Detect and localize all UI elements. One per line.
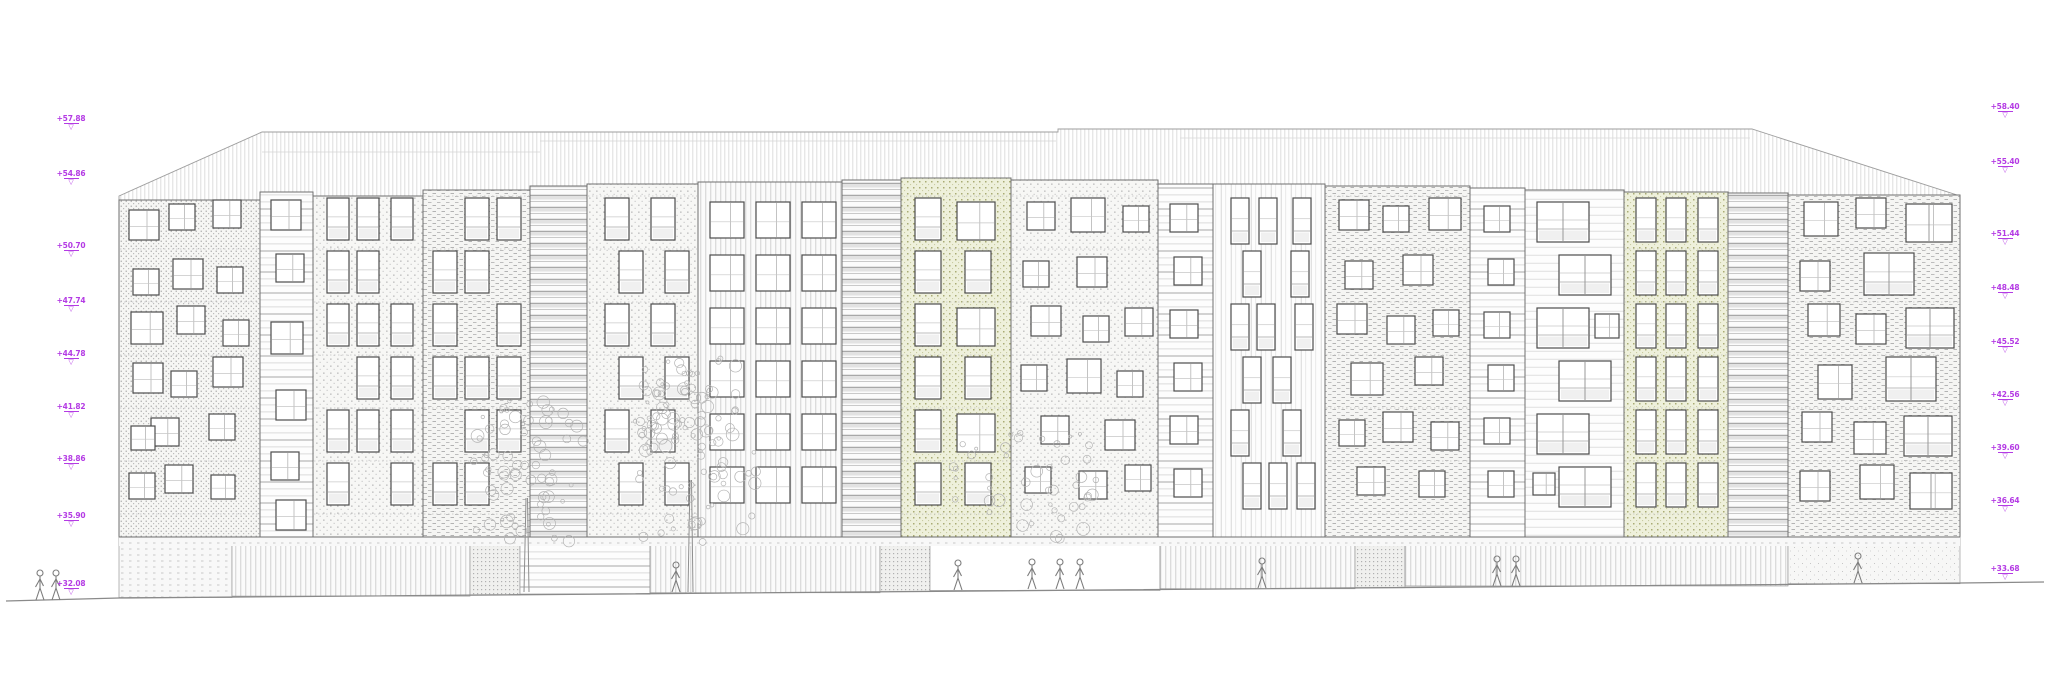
window bbox=[756, 414, 790, 450]
window bbox=[1415, 357, 1443, 385]
window bbox=[756, 308, 790, 344]
level-marker: +58.40▽ bbox=[1982, 103, 2028, 118]
facade-panel-08 bbox=[842, 180, 901, 537]
window bbox=[1174, 363, 1202, 391]
facade-panel-15 bbox=[1525, 190, 1624, 537]
window bbox=[1383, 412, 1413, 442]
window bbox=[1804, 202, 1838, 236]
window bbox=[1174, 469, 1202, 497]
facade-panel-12 bbox=[1213, 184, 1325, 537]
window bbox=[133, 269, 159, 295]
window bbox=[1800, 471, 1830, 501]
level-value: +41.82 bbox=[48, 403, 94, 411]
window bbox=[217, 267, 243, 293]
level-datum-icon: ▽ bbox=[1998, 166, 2013, 173]
facade-panel-02 bbox=[260, 192, 313, 537]
window bbox=[802, 308, 836, 344]
level-value: +47.74 bbox=[48, 297, 94, 305]
level-marker: +39.60▽ bbox=[1982, 444, 2028, 459]
level-datum-icon: ▽ bbox=[1998, 238, 2013, 245]
level-datum-icon: ▽ bbox=[1998, 573, 2013, 580]
window bbox=[209, 414, 235, 440]
elevation-sheet: +57.88▽+54.86▽+50.70▽+47.74▽+44.78▽+41.8… bbox=[0, 0, 2048, 678]
level-datum-icon: ▽ bbox=[1998, 452, 2013, 459]
window bbox=[1533, 473, 1555, 495]
facade-panel-05 bbox=[530, 186, 587, 537]
window bbox=[223, 320, 249, 346]
level-value: +48.48 bbox=[1982, 284, 2028, 292]
window bbox=[1484, 312, 1510, 338]
window bbox=[1808, 304, 1840, 336]
window bbox=[756, 255, 790, 291]
window bbox=[165, 465, 193, 493]
level-marker: +35.90▽ bbox=[48, 512, 94, 527]
window bbox=[1025, 467, 1051, 493]
level-marker: +57.88▽ bbox=[48, 115, 94, 130]
window bbox=[1117, 371, 1143, 397]
facade-panel-17 bbox=[1728, 193, 1788, 537]
window bbox=[1105, 420, 1135, 450]
window bbox=[1170, 416, 1198, 444]
level-value: +45.52 bbox=[1982, 338, 2028, 346]
window bbox=[276, 390, 306, 420]
storefront-section bbox=[119, 537, 232, 598]
window bbox=[1403, 255, 1433, 285]
window bbox=[802, 467, 836, 503]
window bbox=[1123, 206, 1149, 232]
level-value: +50.70 bbox=[48, 242, 94, 250]
window bbox=[173, 259, 203, 289]
window bbox=[1383, 206, 1409, 232]
level-datum-icon: ▽ bbox=[64, 463, 79, 470]
level-datum-icon: ▽ bbox=[64, 305, 79, 312]
window bbox=[710, 202, 744, 238]
facade-panel-18 bbox=[1788, 195, 1960, 537]
level-datum-icon: ▽ bbox=[1998, 399, 2013, 406]
window bbox=[1431, 422, 1459, 450]
window bbox=[1125, 465, 1151, 491]
facade-panel-10 bbox=[1011, 180, 1158, 537]
window bbox=[1345, 261, 1373, 289]
level-value: +55.40 bbox=[1982, 158, 2028, 166]
facade-panel-09 bbox=[901, 178, 1011, 537]
window bbox=[957, 308, 995, 346]
elevation-drawing bbox=[0, 0, 2048, 678]
level-marker: +54.86▽ bbox=[48, 170, 94, 185]
window bbox=[802, 255, 836, 291]
level-datum-icon: ▽ bbox=[64, 411, 79, 418]
level-datum-icon: ▽ bbox=[1998, 505, 2013, 512]
window bbox=[1174, 257, 1202, 285]
level-marker: +45.52▽ bbox=[1982, 338, 2028, 353]
level-marker: +50.70▽ bbox=[48, 242, 94, 257]
facade-panel-11 bbox=[1158, 184, 1213, 537]
window bbox=[1083, 316, 1109, 342]
window bbox=[1071, 198, 1105, 232]
window bbox=[213, 200, 241, 228]
window bbox=[271, 322, 303, 354]
level-marker: +33.68▽ bbox=[1982, 565, 2028, 580]
level-value: +39.60 bbox=[1982, 444, 2028, 452]
facade-panel-07 bbox=[698, 182, 842, 537]
level-value: +35.90 bbox=[48, 512, 94, 520]
window bbox=[710, 308, 744, 344]
window bbox=[271, 452, 299, 480]
window bbox=[1484, 418, 1510, 444]
window bbox=[1077, 257, 1107, 287]
window bbox=[1031, 306, 1061, 336]
window bbox=[129, 210, 159, 240]
window bbox=[1595, 314, 1619, 338]
window bbox=[1419, 471, 1445, 497]
facade-panel-03 bbox=[313, 196, 423, 537]
window bbox=[1027, 202, 1055, 230]
window bbox=[1023, 261, 1049, 287]
window bbox=[1856, 314, 1886, 344]
level-value: +33.68 bbox=[1982, 565, 2028, 573]
window bbox=[131, 312, 163, 344]
window bbox=[1339, 200, 1369, 230]
level-value: +36.64 bbox=[1982, 497, 2028, 505]
window bbox=[169, 204, 195, 230]
level-marker: +48.48▽ bbox=[1982, 284, 2028, 299]
window bbox=[1079, 471, 1107, 499]
facade-panel-13 bbox=[1325, 186, 1470, 537]
window bbox=[1387, 316, 1415, 344]
level-datum-icon: ▽ bbox=[64, 358, 79, 365]
level-value: +58.40 bbox=[1982, 103, 2028, 111]
window bbox=[802, 361, 836, 397]
window bbox=[756, 361, 790, 397]
level-marker: +47.74▽ bbox=[48, 297, 94, 312]
window bbox=[710, 255, 744, 291]
window bbox=[271, 200, 301, 230]
window bbox=[1802, 412, 1832, 442]
window bbox=[1856, 198, 1886, 228]
level-datum-icon: ▽ bbox=[1998, 346, 2013, 353]
level-datum-icon: ▽ bbox=[1998, 292, 2013, 299]
facade-panel-06 bbox=[587, 184, 698, 537]
level-value: +51.44 bbox=[1982, 230, 2028, 238]
facade-panel-04 bbox=[423, 190, 530, 537]
level-datum-icon: ▽ bbox=[64, 123, 79, 130]
level-datum-icon: ▽ bbox=[64, 588, 79, 595]
level-value: +54.86 bbox=[48, 170, 94, 178]
level-marker: +41.82▽ bbox=[48, 403, 94, 418]
level-datum-icon: ▽ bbox=[64, 250, 79, 257]
window bbox=[802, 414, 836, 450]
facade-panel-01 bbox=[119, 200, 260, 537]
window bbox=[957, 414, 995, 452]
level-marker: +32.08▽ bbox=[48, 580, 94, 595]
window bbox=[1800, 261, 1830, 291]
window bbox=[1860, 465, 1894, 499]
window bbox=[1170, 204, 1198, 232]
level-value: +32.08 bbox=[48, 580, 94, 588]
window bbox=[1429, 198, 1461, 230]
window bbox=[1125, 308, 1153, 336]
level-datum-icon: ▽ bbox=[64, 178, 79, 185]
window bbox=[957, 202, 995, 240]
window bbox=[276, 500, 306, 530]
window bbox=[1484, 206, 1510, 232]
window bbox=[1337, 304, 1367, 334]
window bbox=[171, 371, 197, 397]
window bbox=[1854, 422, 1886, 454]
window bbox=[1433, 310, 1459, 336]
level-value: +38.86 bbox=[48, 455, 94, 463]
window bbox=[1818, 365, 1852, 399]
window bbox=[1021, 365, 1047, 391]
level-value: +57.88 bbox=[48, 115, 94, 123]
window bbox=[211, 475, 235, 499]
facade-panel-14 bbox=[1470, 188, 1525, 537]
window bbox=[802, 202, 836, 238]
window bbox=[131, 426, 155, 450]
window bbox=[1067, 359, 1101, 393]
window bbox=[1339, 420, 1365, 446]
level-value: +42.56 bbox=[1982, 391, 2028, 399]
level-marker: +38.86▽ bbox=[48, 455, 94, 470]
level-datum-icon: ▽ bbox=[64, 520, 79, 527]
level-marker: +51.44▽ bbox=[1982, 230, 2028, 245]
window bbox=[1351, 363, 1383, 395]
window bbox=[213, 357, 243, 387]
window bbox=[1041, 416, 1069, 444]
window bbox=[276, 254, 304, 282]
window bbox=[1170, 310, 1198, 338]
level-marker: +55.40▽ bbox=[1982, 158, 2028, 173]
window bbox=[1357, 467, 1385, 495]
window bbox=[1488, 471, 1514, 497]
facade-panel-16 bbox=[1624, 192, 1728, 537]
level-value: +44.78 bbox=[48, 350, 94, 358]
storefront-base bbox=[119, 537, 1960, 598]
level-marker: +36.64▽ bbox=[1982, 497, 2028, 512]
level-marker: +44.78▽ bbox=[48, 350, 94, 365]
window bbox=[756, 202, 790, 238]
level-marker: +42.56▽ bbox=[1982, 391, 2028, 406]
window bbox=[1488, 259, 1514, 285]
window bbox=[133, 363, 163, 393]
level-datum-icon: ▽ bbox=[1998, 111, 2013, 118]
window bbox=[177, 306, 205, 334]
window bbox=[129, 473, 155, 499]
person-figure bbox=[36, 570, 45, 600]
window bbox=[1488, 365, 1514, 391]
